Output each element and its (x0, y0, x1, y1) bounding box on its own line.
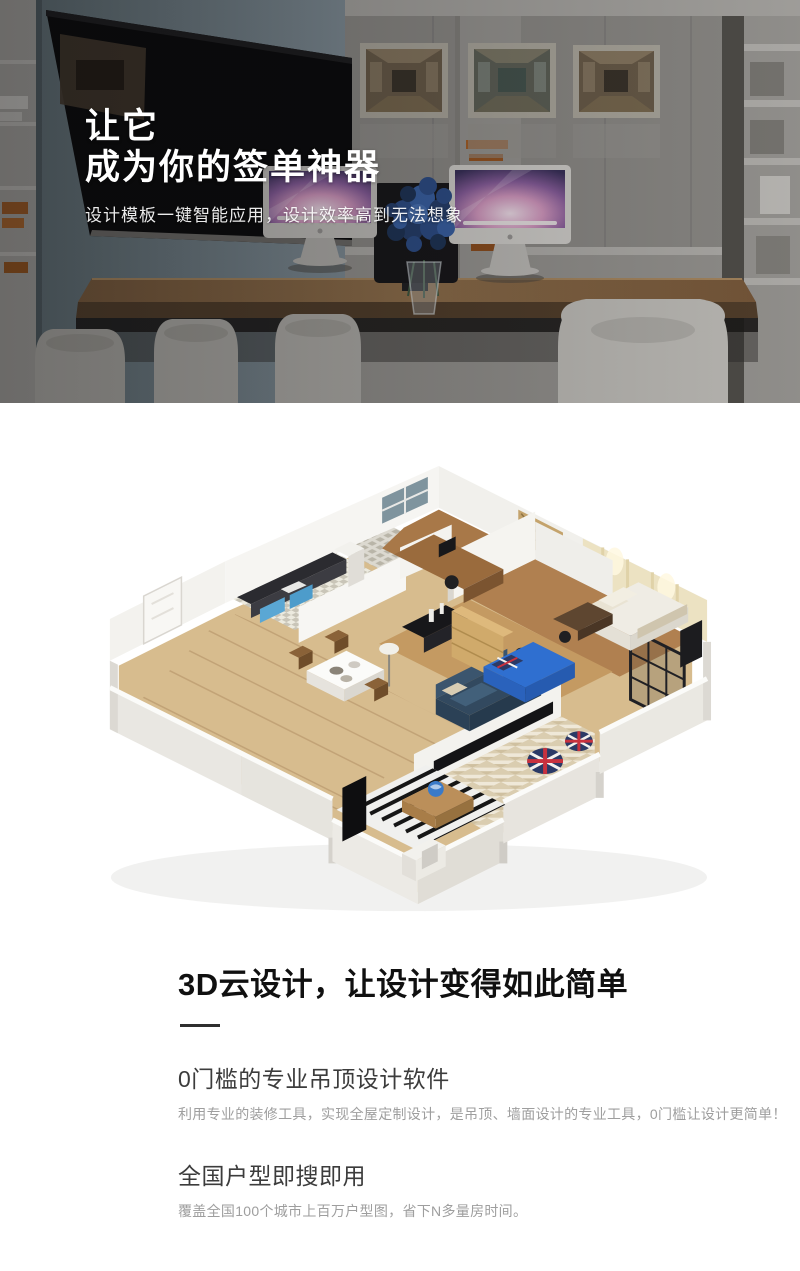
entry-door (144, 577, 182, 644)
floorplan-illustration (86, 460, 722, 927)
intro-section: 3D云设计，让设计变得如此简单 0门槛的专业吊顶设计软件 利用专业的装修工具，实… (178, 966, 738, 1222)
heading-divider (180, 1024, 220, 1027)
hero-banner: 让它 成为你的签单神器 设计模板一键智能应用，设计效率高到无法想象 (0, 0, 800, 403)
hero-title-line1: 让它 (85, 106, 463, 147)
feature-floorplan-search: 全国户型即搜即用 覆盖全国100个城市上百万户型图，省下N多量房时间。 (178, 1157, 738, 1221)
hero-title-line2: 成为你的签单神器 (85, 147, 463, 188)
landing-page: 让它 成为你的签单神器 设计模板一键智能应用，设计效率高到无法想象 (0, 0, 800, 1271)
section-heading: 3D云设计，让设计变得如此简单 (178, 966, 738, 1003)
hero-text-block: 让它 成为你的签单神器 设计模板一键智能应用，设计效率高到无法想象 (85, 106, 463, 226)
feature-title: 全国户型即搜即用 (178, 1157, 738, 1191)
feature-ceiling-design: 0门槛的专业吊顶设计软件 利用专业的装修工具，实现全屋定制设计，是吊顶、墙面设计… (178, 1060, 738, 1124)
floorplan-section (0, 460, 800, 930)
feature-desc: 利用专业的装修工具，实现全屋定制设计，是吊顶、墙面设计的专业工具，0门槛让设计更… (178, 1104, 738, 1124)
hero-subtitle: 设计模板一键智能应用，设计效率高到无法想象 (85, 201, 463, 226)
feature-desc: 覆盖全国100个城市上百万户型图，省下N多量房时间。 (178, 1201, 738, 1221)
feature-title: 0门槛的专业吊顶设计软件 (178, 1060, 738, 1094)
